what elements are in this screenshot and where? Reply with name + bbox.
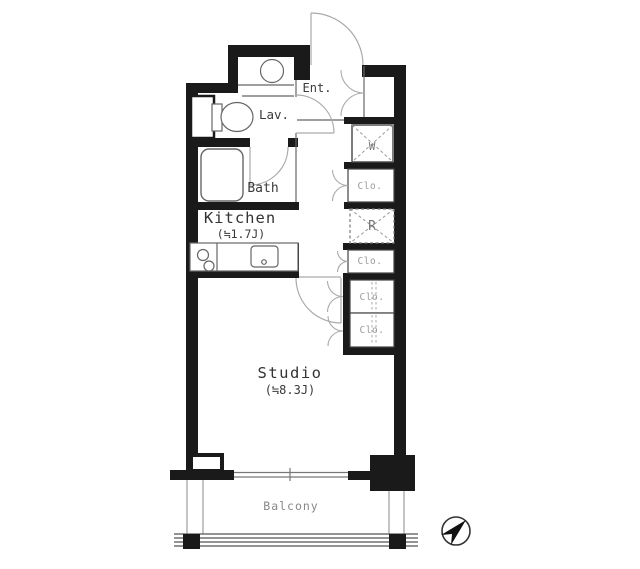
stove-burner bbox=[198, 250, 209, 261]
compass bbox=[441, 517, 470, 545]
washer-label: W bbox=[369, 140, 376, 153]
window-sliding-door bbox=[234, 468, 348, 481]
lavatory-door bbox=[296, 95, 334, 133]
floor-plan-drawing: Ent. Lav. Bath Kitchen (≒1.7J) W Clo. R … bbox=[0, 0, 640, 569]
studio-door-arc bbox=[296, 278, 341, 323]
closet-label: Clo. bbox=[358, 181, 383, 192]
bath-door bbox=[250, 147, 288, 185]
kitchen-label: Kitchen bbox=[204, 209, 276, 227]
toilet-bowl bbox=[221, 103, 253, 132]
kitchen-fixtures bbox=[190, 243, 298, 271]
bath-door-arc bbox=[250, 147, 288, 185]
sink-drain bbox=[262, 260, 267, 265]
bathtub bbox=[201, 149, 243, 201]
lavatory-label: Lav. bbox=[259, 107, 289, 122]
studio-label: Studio bbox=[258, 364, 323, 382]
balcony-post bbox=[389, 534, 406, 549]
studio-area-label: (≒8.3J) bbox=[265, 383, 316, 397]
entrance-label: Ent. bbox=[303, 81, 332, 95]
entrance-door bbox=[311, 13, 363, 65]
pillar-outline bbox=[191, 455, 222, 471]
closet-label: Clo. bbox=[358, 256, 383, 267]
closet-label: Clo. bbox=[360, 325, 385, 336]
balcony-post bbox=[183, 534, 200, 549]
lavatory-door-arc bbox=[296, 95, 334, 133]
closet-label: Clo. bbox=[360, 292, 385, 303]
pipe-space bbox=[191, 96, 214, 138]
bath-label: Bath bbox=[247, 181, 278, 196]
studio-door bbox=[296, 278, 341, 323]
pillar-column bbox=[370, 455, 415, 491]
stove-burner bbox=[204, 261, 214, 271]
kitchen-area-label: (≒1.7J) bbox=[217, 227, 265, 241]
wash-basin bbox=[261, 60, 284, 83]
balcony-label: Balcony bbox=[263, 499, 318, 513]
refrigerator-label: R bbox=[368, 219, 376, 234]
floor-plan-page: Ent. Lav. Bath Kitchen (≒1.7J) W Clo. R … bbox=[0, 0, 640, 569]
balcony-railing bbox=[174, 534, 418, 546]
entrance-door-arc bbox=[311, 13, 363, 65]
